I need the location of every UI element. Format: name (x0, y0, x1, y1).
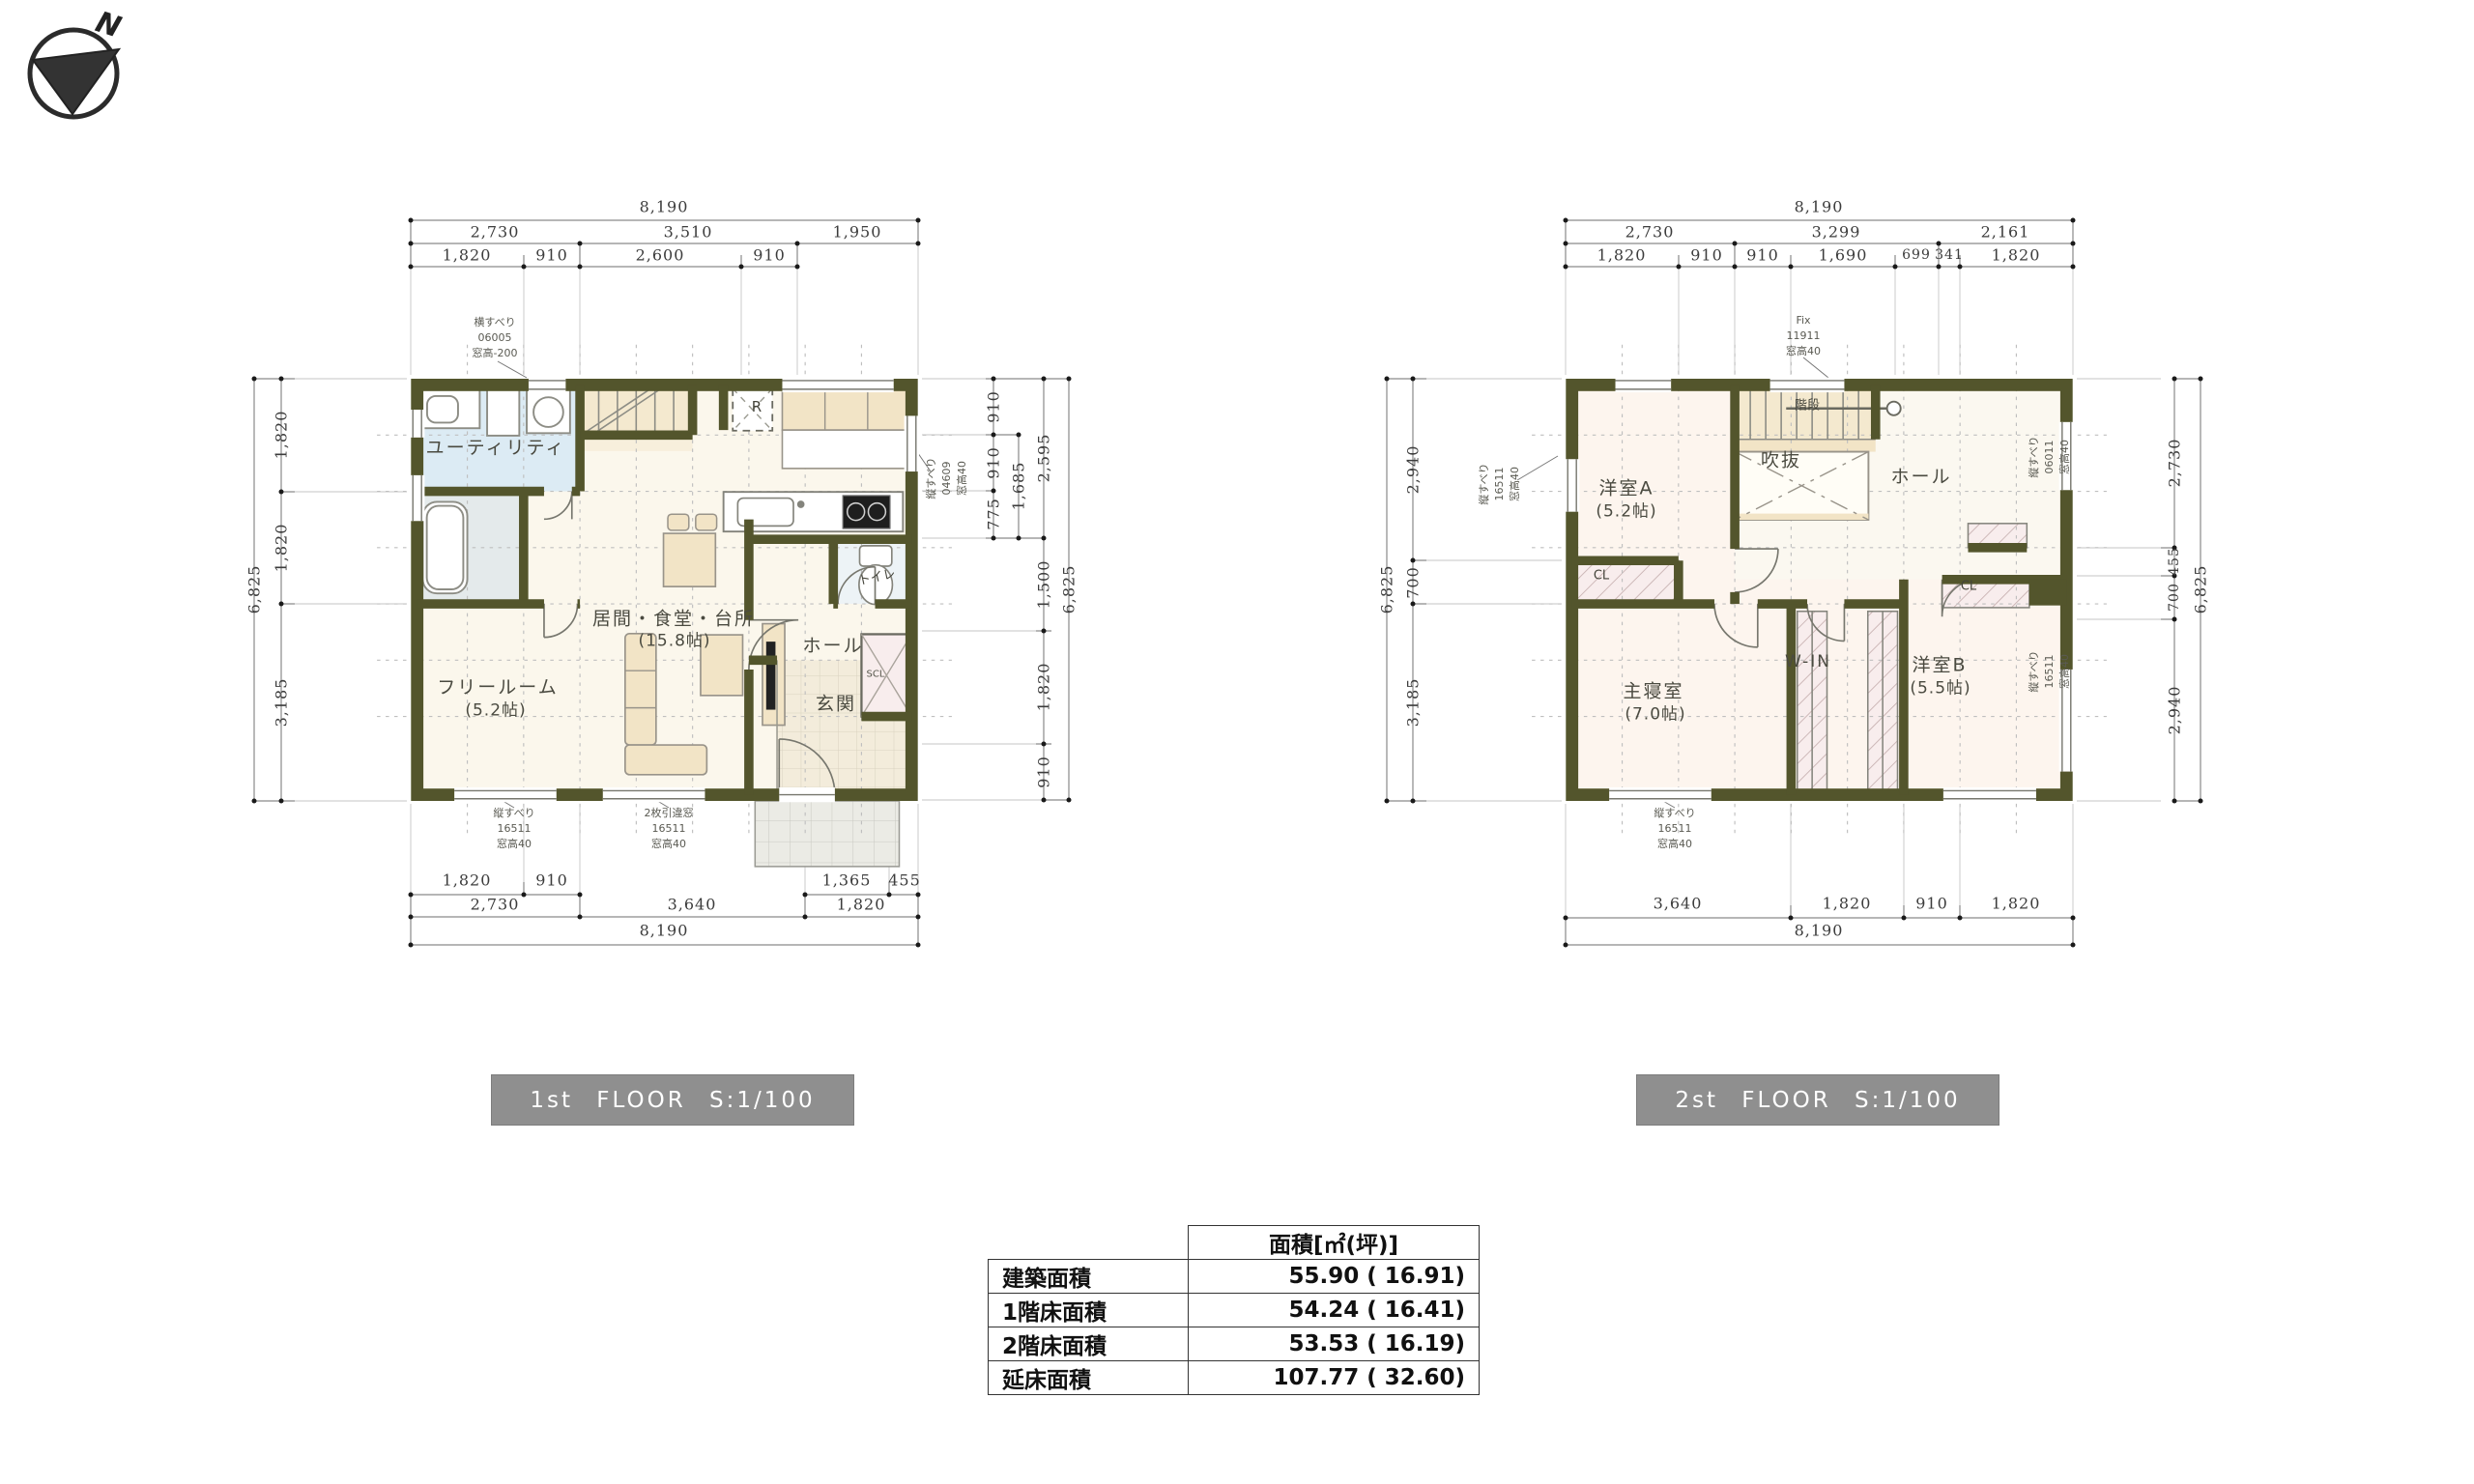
area-table-header-row: 面積[㎡(坪)] (989, 1226, 1480, 1260)
table-row: 1階床面積 54.24 ( 16.41) (989, 1294, 1480, 1327)
f1-annotation-bottom-center-window: 2枚引違窓 16511 窓高40 (645, 806, 694, 852)
floor2-badge-label: 2st FLOOR S:1/100 (1675, 1088, 1960, 1113)
f1-dim: 1,820 (443, 871, 492, 890)
table-row: 建築面積 55.90 ( 16.91) (989, 1260, 1480, 1294)
f1-dim: 910 (535, 246, 568, 265)
f1-annotation-right-window: 縦すべり 04609 窓高40 (924, 457, 970, 499)
f1-label-refrigerator: R (752, 398, 762, 415)
f1-dim: 3,510 (664, 223, 713, 242)
area-table: 面積[㎡(坪)] 建築面積 55.90 ( 16.91) 1階床面積 54.24… (988, 1225, 1480, 1395)
f1-label-free-room-size: (5.2帖) (465, 697, 526, 721)
f1-dim: 775 (985, 498, 1003, 530)
f1-dim-left-total: 6,825 (245, 565, 264, 614)
f1-annotation-bottom-left-window: 縦すべり 16511 窓高40 (493, 806, 534, 852)
area-table-header-spacer (989, 1226, 1189, 1260)
f1-dim-bottom-total: 8,190 (640, 922, 689, 940)
f2-dim-right-total: 6,825 (2192, 565, 2210, 614)
f1-dim-right-total: 6,825 (1060, 565, 1079, 614)
f1-dim: 3,640 (668, 896, 717, 914)
f2-dim: 1,820 (1992, 246, 2041, 265)
f1-label-entrance: 玄関 (816, 690, 856, 716)
area-row-value: 53.53 ( 16.19) (1189, 1327, 1480, 1361)
area-table-header: 面積[㎡(坪)] (1189, 1226, 1480, 1260)
area-row-value: 107.77 ( 32.60) (1189, 1361, 1480, 1395)
table-row: 2階床面積 53.53 ( 16.19) (989, 1327, 1480, 1361)
f2-dim: 910 (1690, 246, 1723, 265)
f2-dim: 1,820 (1992, 895, 2041, 913)
f2-dim: 910 (1746, 246, 1779, 265)
floor1-badge: 1st FLOOR S:1/100 (491, 1074, 854, 1126)
f2-dim-bottom-total: 8,190 (1795, 922, 1844, 940)
f1-dim: 910 (535, 871, 568, 890)
f2-dim: 2,940 (1404, 445, 1423, 495)
f2-label-closet-b: CL (1961, 580, 1976, 594)
f1-label-ldk-size: (15.8帖) (638, 627, 710, 651)
f1-dim: 1,950 (833, 223, 882, 242)
f2-dim: 1,690 (1819, 246, 1868, 265)
f1-dim: 3,185 (273, 678, 291, 728)
f1-dim: 1,365 (822, 871, 872, 890)
f1-annotation-top-window: 横すべり 06005 窓高-200 (473, 315, 518, 361)
f2-label-closet-a: CL (1594, 569, 1609, 584)
f1-dim: 2,595 (1035, 434, 1053, 483)
f2-annotation-right-bottom-window: 縦すべり 16511 窓高40 (2027, 650, 2073, 692)
area-row-label: 延床面積 (989, 1361, 1189, 1395)
f1-dim: 2,730 (471, 223, 520, 242)
f2-label-master: 主寝室 (1623, 677, 1683, 703)
f2-dim: 3,299 (1812, 223, 1861, 242)
f2-dim-left-total: 6,825 (1378, 565, 1396, 614)
f2-dim: 2,161 (1981, 223, 2030, 242)
f2-dim: 341 (1935, 247, 1964, 263)
f2-label-walk-in: W-IN (1785, 652, 1831, 671)
f1-dim: 1,820 (443, 246, 492, 265)
f2-dim: 2,730 (2166, 439, 2184, 488)
f1-dim: 1,685 (1010, 462, 1028, 511)
f1-dim: 1,820 (837, 896, 886, 914)
f2-dim: 2,730 (1625, 223, 1675, 242)
f2-label-void: 吹抜 (1761, 446, 1801, 472)
f1-label-utility: ユーティリティ (426, 434, 566, 460)
table-row: 延床面積 107.77 ( 32.60) (989, 1361, 1480, 1395)
area-row-label: 1階床面積 (989, 1294, 1189, 1327)
f2-dim: 1,820 (1823, 895, 1872, 913)
area-row-value: 55.90 ( 16.91) (1189, 1260, 1480, 1294)
f2-label-stairs: 階段 (1795, 395, 1820, 414)
f2-label-hall: ホール (1890, 463, 1951, 489)
area-row-label: 建築面積 (989, 1260, 1189, 1294)
f2-dim-top-total: 8,190 (1795, 198, 1844, 216)
f2-dim: 455 (2167, 547, 2182, 576)
f2-dim: 700 (1404, 566, 1423, 599)
f2-label-room-b: 洋室B (1912, 651, 1967, 677)
f2-label-room-a-size: (5.2帖) (1596, 498, 1656, 522)
f1-dim: 1,820 (1035, 663, 1053, 712)
area-row-value: 54.24 ( 16.41) (1189, 1294, 1480, 1327)
f2-annotation-left-window: 縦すべり 16511 窓高40 (1477, 463, 1523, 504)
f2-annotation-right-top-window: 縦すべり 06011 窓高40 (2027, 436, 2073, 477)
f1-dim: 1,500 (1035, 560, 1053, 610)
f2-dim: 910 (1915, 895, 1948, 913)
floor1-badge-label: 1st FLOOR S:1/100 (530, 1088, 815, 1113)
f2-dim: 1,820 (1597, 246, 1647, 265)
f1-dim-top-total: 8,190 (640, 198, 689, 216)
floorplan-sheet: N (0, 0, 2474, 1484)
area-row-label: 2階床面積 (989, 1327, 1189, 1361)
f1-dim: 910 (985, 446, 1003, 479)
f2-annotation-top-window: Fix 11911 窓高40 (1786, 313, 1821, 359)
f2-label-master-size: (7.0帖) (1625, 700, 1685, 725)
f2-annotation-bottom-window: 縦すべり 16511 窓高40 (1654, 806, 1695, 852)
f1-label-free-room: フリールーム (437, 673, 558, 699)
f1-dim: 2,600 (636, 246, 685, 265)
f2-dim: 700 (2167, 583, 2182, 612)
f1-label-shoe-closet: SCL (867, 670, 885, 680)
f1-label-hall: ホール (802, 632, 863, 658)
f1-dim: 1,820 (273, 411, 291, 460)
f1-dim: 910 (985, 390, 1003, 423)
f2-dim: 2,940 (2166, 686, 2184, 735)
f2-dim: 699 (1902, 247, 1931, 263)
floor2-badge: 2st FLOOR S:1/100 (1636, 1074, 1999, 1126)
f2-label-room-a: 洋室A (1599, 474, 1654, 500)
f2-label-room-b-size: (5.5帖) (1910, 674, 1971, 699)
f2-dim: 3,640 (1654, 895, 1703, 913)
f1-dim: 455 (888, 871, 921, 890)
floor2-plan-drawing (1566, 379, 2073, 801)
f1-dim: 2,730 (471, 896, 520, 914)
f1-dim: 910 (1035, 756, 1053, 788)
f1-dim: 910 (753, 246, 786, 265)
floor2-floors (1569, 383, 2069, 798)
f1-dim: 1,820 (273, 524, 291, 573)
f2-dim: 3,185 (1404, 678, 1423, 728)
